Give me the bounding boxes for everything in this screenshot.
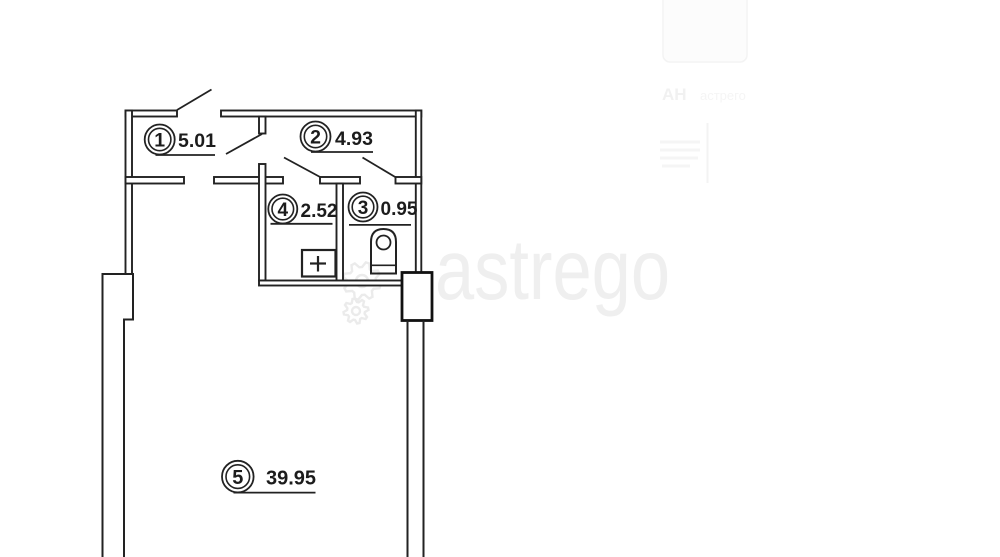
svg-text:39.95: 39.95 [266, 468, 316, 490]
svg-text:астрего: астрего [700, 88, 746, 103]
svg-text:АН: АН [662, 85, 687, 104]
svg-text:4: 4 [278, 200, 289, 221]
svg-text:4.93: 4.93 [335, 128, 373, 150]
svg-text:2: 2 [310, 127, 321, 149]
svg-text:0.95: 0.95 [381, 199, 418, 220]
svg-text:3: 3 [358, 198, 369, 219]
svg-text:5: 5 [232, 467, 243, 489]
svg-text:astrego: astrego [435, 223, 670, 318]
svg-text:1: 1 [154, 130, 165, 152]
svg-text:5.01: 5.01 [178, 130, 216, 152]
svg-text:2.52: 2.52 [301, 201, 338, 222]
